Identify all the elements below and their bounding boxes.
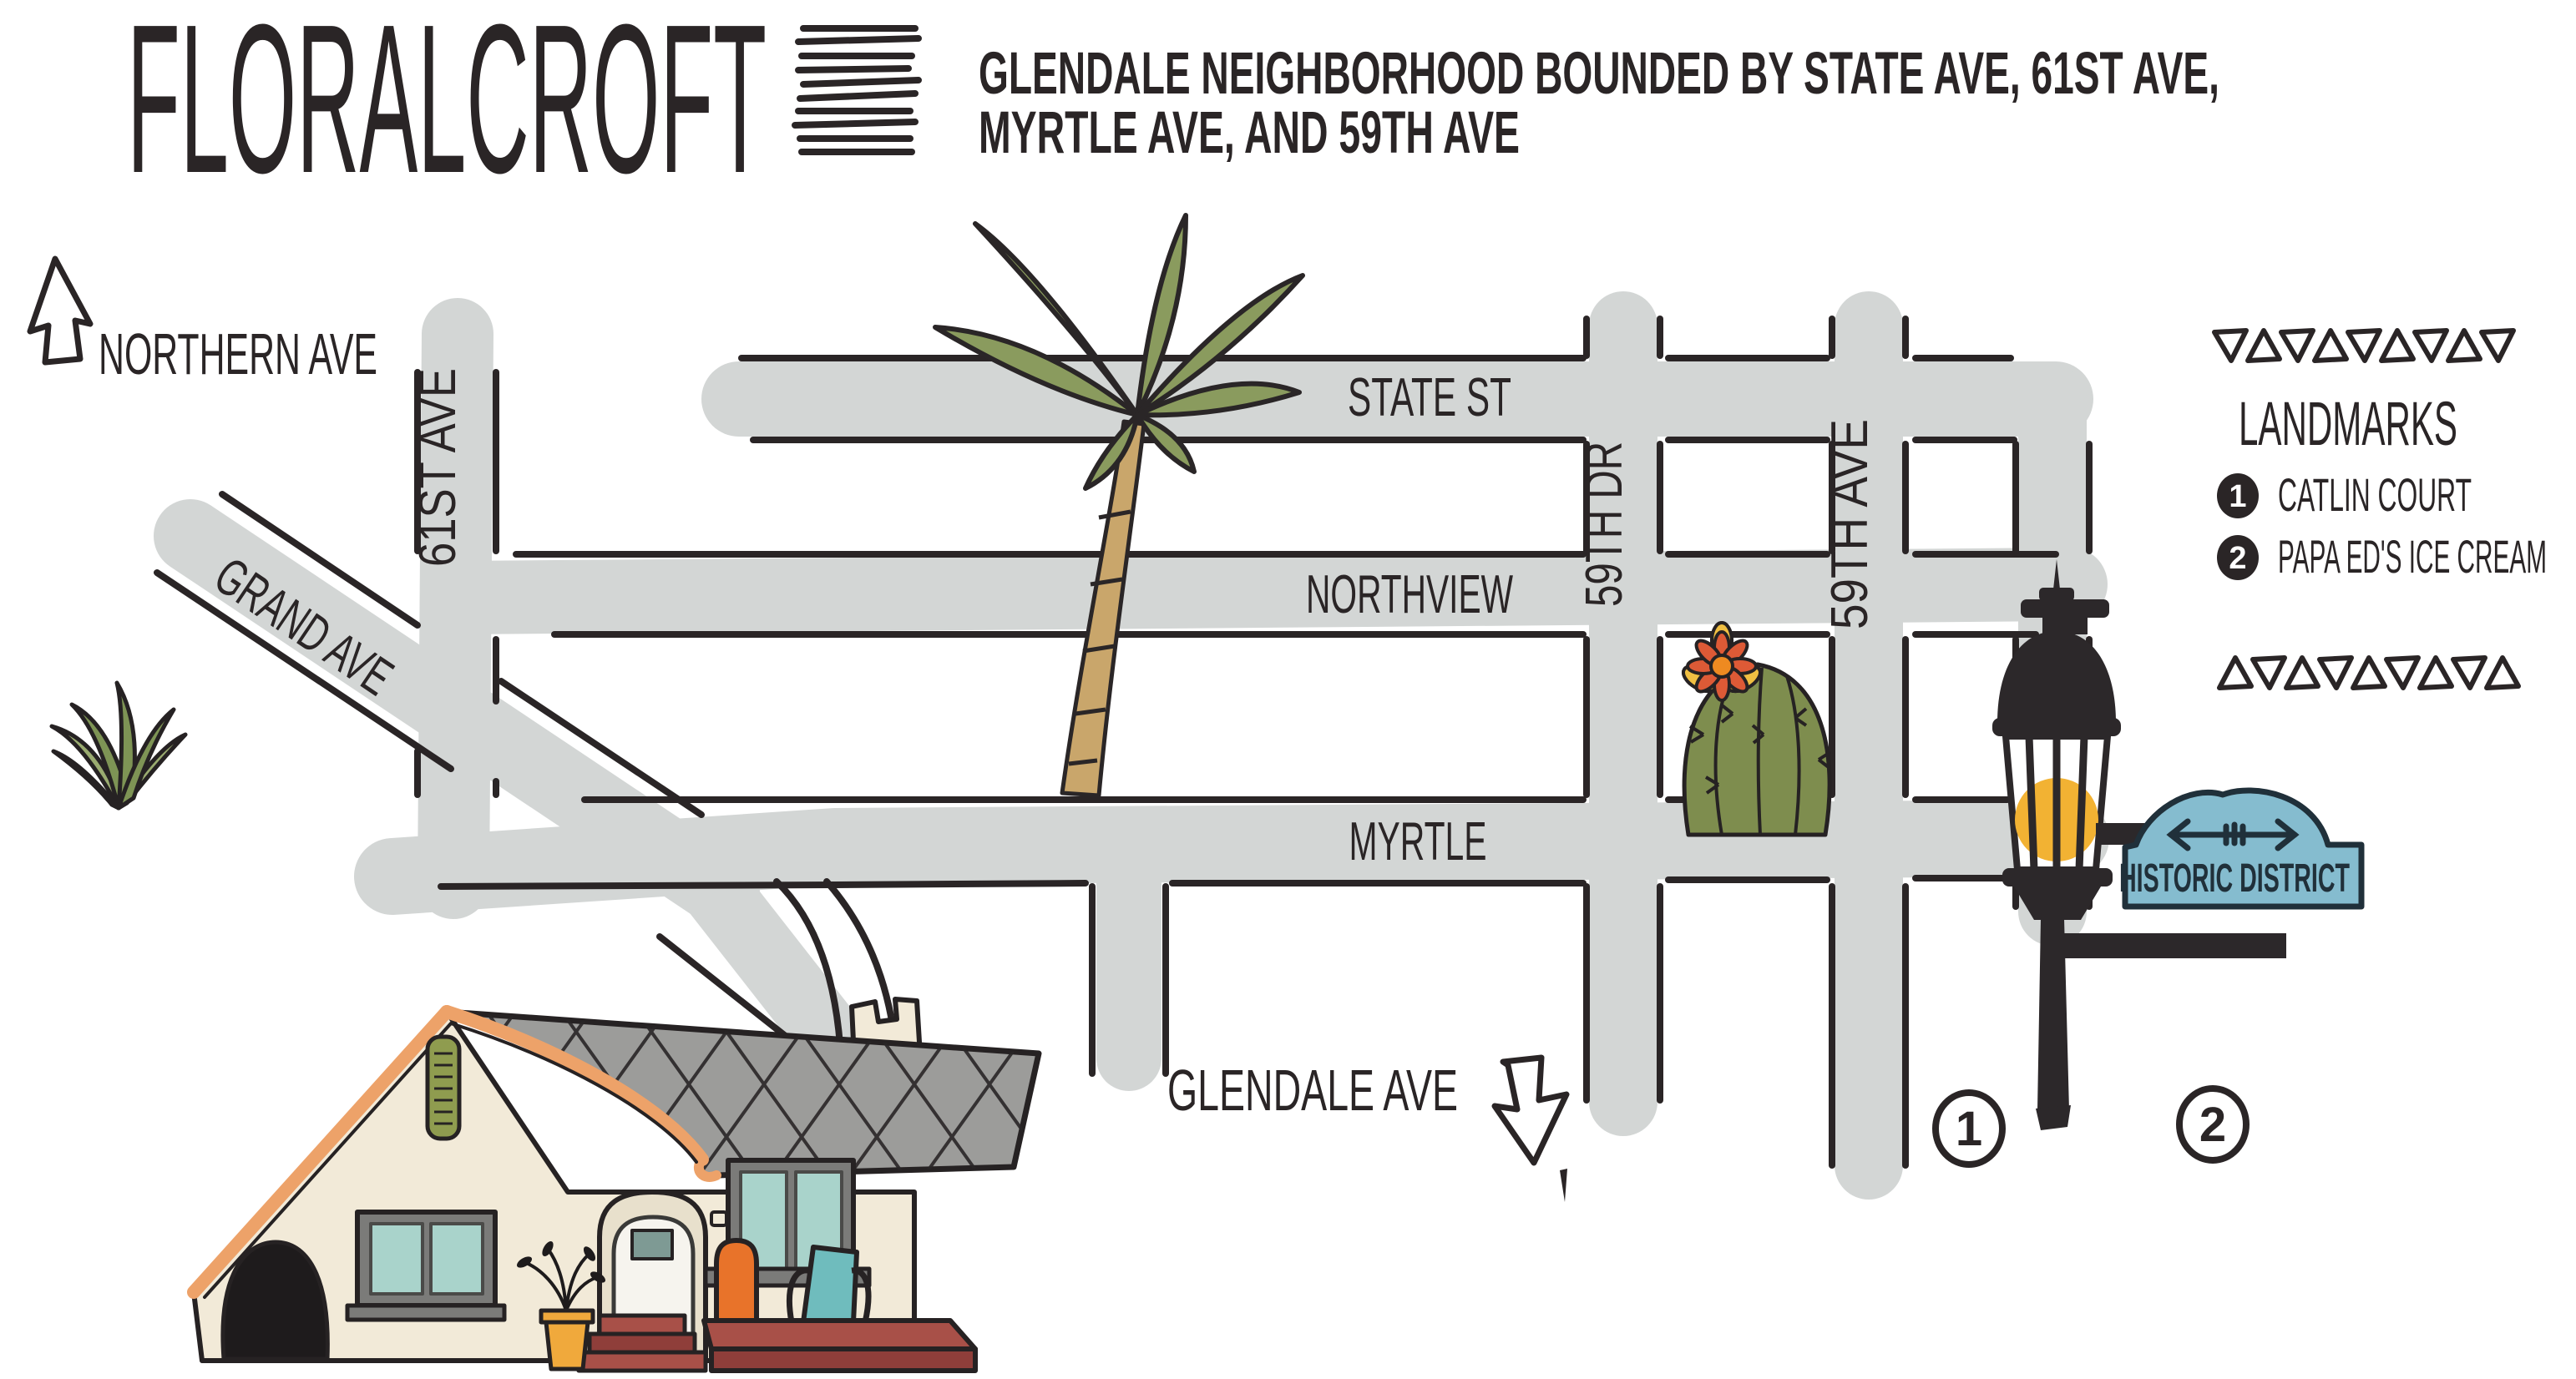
map-marker-2-number: 2: [2199, 1098, 2226, 1152]
legend-item-1: 1 CATLIN COURT: [2217, 469, 2472, 521]
agave-plant-icon: [52, 683, 185, 808]
palm-fronds: [935, 215, 1303, 488]
sign-bracket-lower: [2052, 933, 2286, 958]
house-window-left: [347, 1212, 504, 1320]
legend-item-1-label: CATLIN COURT: [2278, 469, 2472, 521]
triangle-zigzag-bottom: [2219, 658, 2518, 688]
road-myrtle: [392, 838, 2071, 876]
legend-badge-2-number: 2: [2229, 541, 2246, 576]
northern-ave-label: NORTHERN AVE: [99, 322, 377, 386]
cactus-icon: [1679, 623, 1830, 835]
subtitle-line-2: MYRTLE AVE, AND 59TH AVE: [979, 98, 1520, 166]
porch-platform: [704, 1321, 975, 1371]
house-gable-vent: [428, 1037, 459, 1139]
legend-badge-1-number: 1: [2229, 479, 2246, 514]
doorbell: [711, 1212, 726, 1225]
legend-item-2-label: PAPA ED'S ICE CREAM: [2278, 531, 2547, 583]
north-indicator: NORTHERN AVE: [30, 259, 377, 386]
header: FLORALCROFT GLENDALE NEIGHBORHOOD BOUNDE…: [127, 0, 2219, 218]
label-northview: NORTHVIEW: [1306, 565, 1513, 625]
map-pin-needle: [1560, 1169, 1567, 1202]
decorative-lines-icon: [795, 28, 919, 152]
label-myrtle: MYRTLE: [1349, 812, 1487, 872]
label-state-st: STATE ST: [1348, 368, 1511, 428]
label-59th-ave: 59TH AVE: [1820, 419, 1879, 629]
label-glendale-ave: GLENDALE AVE: [1167, 1058, 1458, 1123]
sign-text: HISTORIC DISTRICT: [2119, 855, 2350, 900]
legend-item-2: 2 PAPA ED'S ICE CREAM: [2217, 531, 2547, 583]
palm-tree-icon: [935, 215, 1303, 796]
north-arrow-icon: [30, 259, 90, 362]
map-marker-2: 2: [2179, 1089, 2246, 1160]
front-steps: [579, 1316, 706, 1371]
label-59th-dr: 59TH DR: [1575, 442, 1633, 607]
legend-title: LANDMARKS: [2239, 389, 2457, 459]
glendale-ave-indicator: GLENDALE AVE: [1167, 1058, 1567, 1202]
lamp-pole: [2037, 918, 2069, 1110]
down-arrow-icon: [1495, 1058, 1566, 1163]
floralcroft-map: FLORALCROFT GLENDALE NEIGHBORHOOD BOUNDE…: [0, 0, 2576, 1375]
triangle-zigzag-top: [2214, 331, 2513, 361]
page-title: FLORALCROFT: [127, 0, 767, 218]
subtitle-line-1: GLENDALE NEIGHBORHOOD BOUNDED BY STATE A…: [979, 39, 2219, 107]
historic-district-sign: HISTORIC DISTRICT: [2119, 791, 2361, 907]
map-marker-1: 1: [1936, 1093, 2002, 1164]
label-61st-ave: 61ST AVE: [408, 368, 467, 567]
house-illustration: [194, 985, 1161, 1371]
legend: LANDMARKS 1 CATLIN COURT 2 PAPA ED'S ICE…: [2214, 331, 2547, 688]
map-marker-1-number: 1: [1956, 1102, 1982, 1156]
